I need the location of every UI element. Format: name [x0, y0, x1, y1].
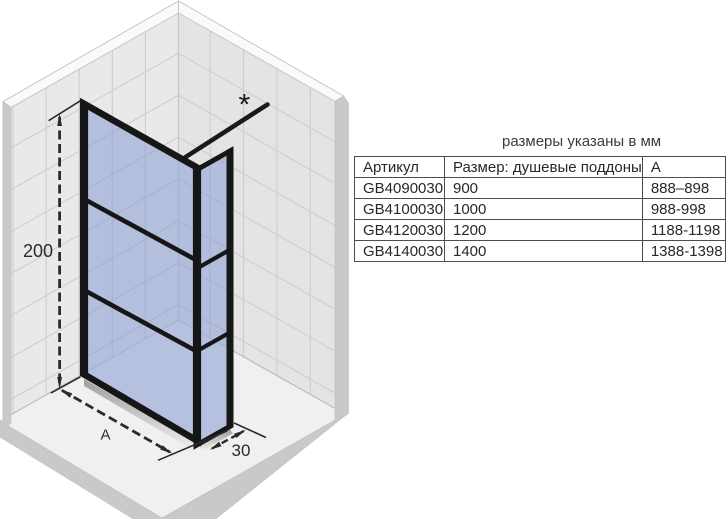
svg-text:200: 200 [23, 241, 53, 261]
svg-text:*: * [239, 89, 251, 122]
svg-text:30: 30 [232, 441, 251, 460]
svg-text:А: А [101, 426, 111, 443]
